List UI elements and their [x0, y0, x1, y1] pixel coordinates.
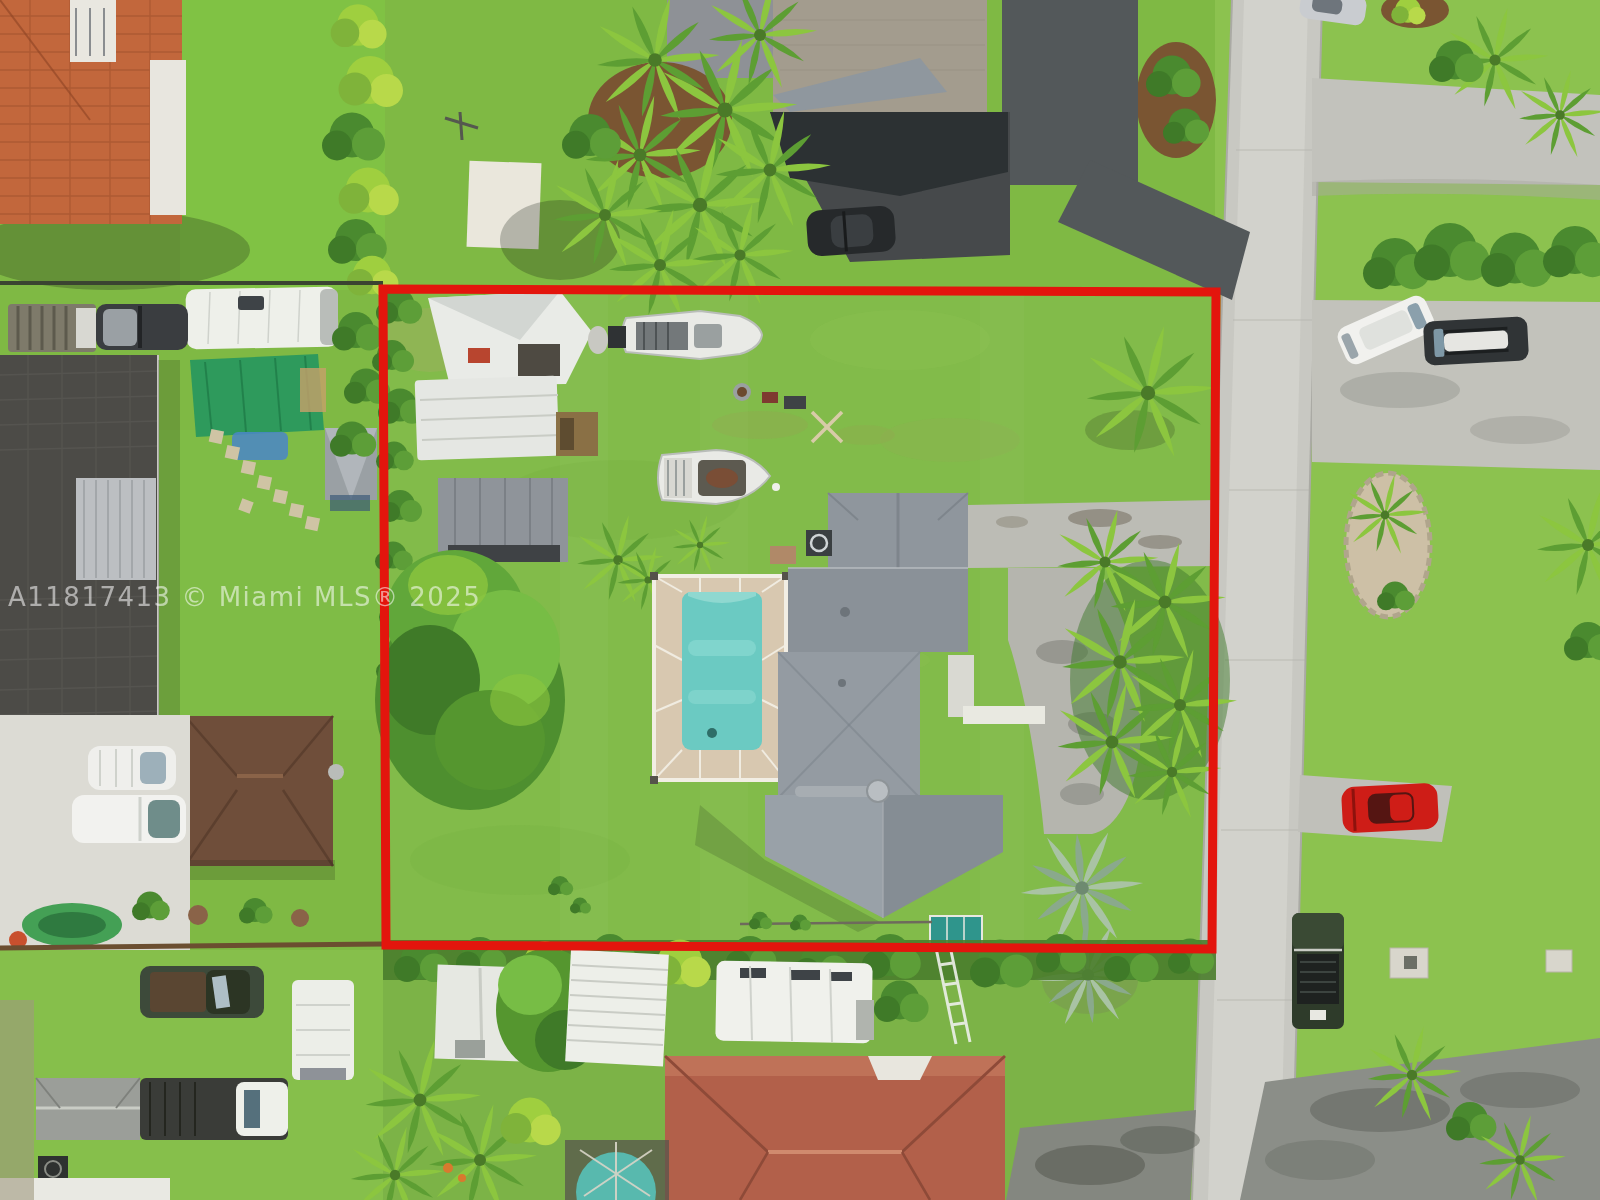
- chimney: [770, 546, 796, 564]
- dark-pickup-left: [96, 304, 188, 350]
- swimming-pool: [682, 592, 762, 750]
- bottom-white-rv: [715, 961, 874, 1044]
- corrugated-building: [565, 950, 669, 1067]
- army-jeep: [1292, 913, 1344, 1029]
- gray-shed-bottom-left: [36, 1078, 140, 1140]
- dark-sedan: [806, 205, 897, 257]
- white-rv-left: [185, 287, 338, 350]
- dark-suv-street: [1423, 316, 1529, 365]
- bottom-red-house: [665, 1056, 1005, 1200]
- brown-roof-house: [185, 716, 344, 880]
- flatbed-trailer: [140, 1078, 288, 1140]
- white-box-trailer: [292, 980, 354, 1080]
- mls-watermark: A11817413 © Miami MLS® 2025: [8, 582, 481, 612]
- green-pickup-bottom: [140, 966, 264, 1018]
- red-car: [1341, 783, 1439, 834]
- dark-roof-house: [0, 355, 180, 727]
- white-van-left: [72, 795, 186, 843]
- dark-driveway-top: [1002, 0, 1138, 185]
- aerial-scene: A11817413 © Miami MLS® 2025: [0, 0, 1600, 1200]
- white-tarp-canopy: [428, 291, 592, 386]
- bottom-round-pool: [565, 1140, 669, 1200]
- orange-house-white-wall: [150, 60, 186, 215]
- white-suv-left: [88, 746, 176, 790]
- boat-rack-left: [8, 304, 96, 352]
- pool-enclosure: [650, 572, 790, 784]
- white-walkway: [963, 706, 1045, 724]
- aerial-photo: A11817413 © Miami MLS® 2025: [0, 0, 1600, 1200]
- paver-garden-right: [1346, 473, 1430, 617]
